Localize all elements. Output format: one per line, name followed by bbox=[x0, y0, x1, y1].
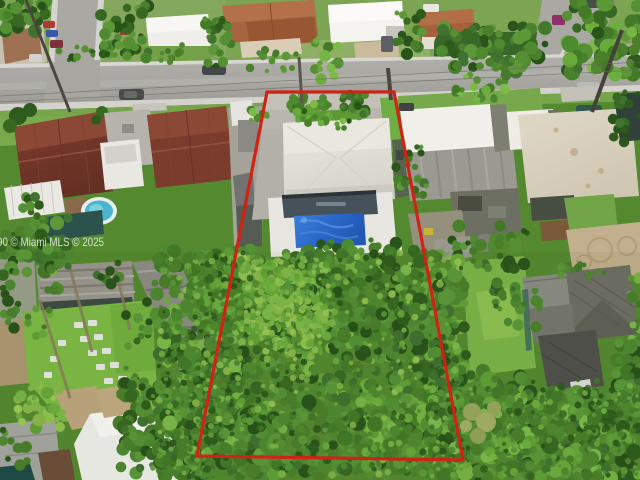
svg-text:90 © Miami MLS © 2025: 90 © Miami MLS © 2025 bbox=[0, 235, 104, 249]
